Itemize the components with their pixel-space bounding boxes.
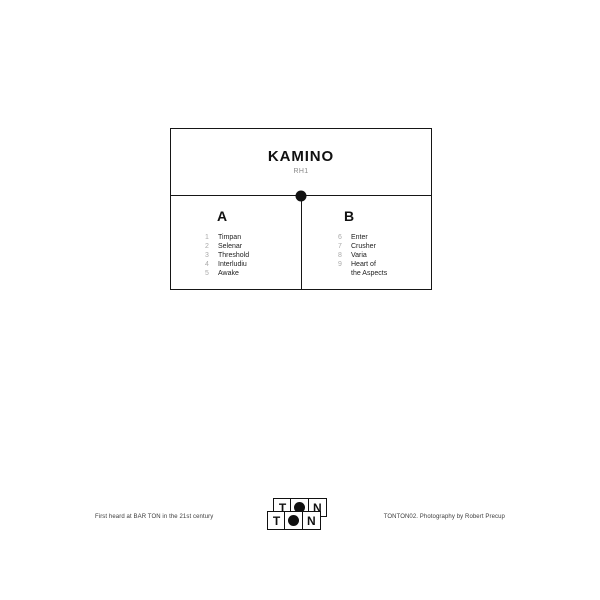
track-title: Timpan (218, 233, 241, 242)
track-title: Threshold (218, 251, 249, 260)
album-subtitle: RH1 (294, 168, 309, 175)
track-title: Crusher (351, 242, 376, 251)
side-b-tracklist: 6 Enter 7 Crusher 8 Varia (302, 233, 431, 278)
logo-circle-o-cell (284, 511, 303, 530)
track-row: 1 Timpan (205, 233, 301, 242)
track-number: 3 (205, 251, 218, 260)
track-title: Varia (351, 251, 367, 260)
track-title: Selenar (218, 242, 242, 251)
track-number: 6 (338, 233, 351, 242)
logo-front-row: T N (267, 511, 321, 530)
side-a-tracklist: 1 Timpan 2 Selenar 3 Threshold (171, 233, 301, 278)
side-a-panel: A 1 Timpan 2 Selenar (171, 196, 301, 289)
track-number: 4 (205, 260, 218, 269)
logo-letter-n-cell: N (302, 511, 321, 530)
spindle-dot-icon (296, 191, 307, 202)
track-number: 9 (338, 260, 351, 278)
track-number: 5 (205, 269, 218, 278)
album-title: KAMINO (268, 150, 334, 164)
circle-o-icon (288, 515, 299, 526)
track-title: Awake (218, 269, 239, 278)
logo-letter-t-cell: T (267, 511, 286, 530)
track-row: 2 Selenar (205, 242, 301, 251)
side-b-panel: B 6 Enter 7 Crusher (301, 196, 431, 289)
track-number: 1 (205, 233, 218, 242)
track-row: 7 Crusher (338, 242, 431, 251)
footer-left-note: First heard at BAR TON in the 21st centu… (95, 514, 213, 520)
side-a-label: A (217, 209, 301, 223)
track-title: Enter (351, 233, 368, 242)
track-title: Interludiu (218, 260, 247, 269)
side-b-label: B (344, 209, 431, 223)
artwork-canvas: KAMINO RH1 A 1 Timpan 2 S (0, 0, 600, 600)
track-row: 5 Awake (205, 269, 301, 278)
track-row: 3 Threshold (205, 251, 301, 260)
tracklist-section: A 1 Timpan 2 Selenar (171, 196, 431, 289)
track-row: 8 Varia (338, 251, 431, 260)
track-row: 9 Heart of the Aspects (338, 260, 431, 278)
title-section: KAMINO RH1 (171, 129, 431, 196)
track-row: 6 Enter (338, 233, 431, 242)
track-row: 4 Interludiu (205, 260, 301, 269)
track-number: 7 (338, 242, 351, 251)
record-sleeve-panel: KAMINO RH1 A 1 Timpan 2 S (170, 128, 432, 290)
footer-right-note: TONTON02. Photography by Robert Precup (384, 514, 505, 520)
track-title: Heart of the Aspects (351, 260, 387, 278)
tonton-logo: T N T N (267, 498, 333, 532)
track-number: 2 (205, 242, 218, 251)
track-number: 8 (338, 251, 351, 260)
